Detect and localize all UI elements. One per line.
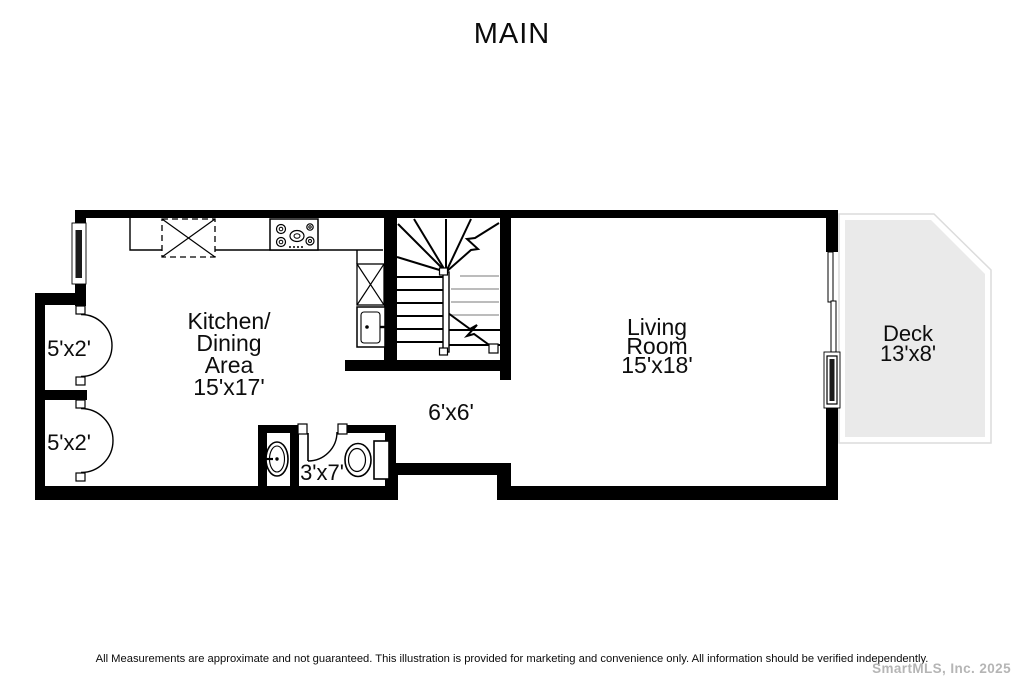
- pantry-x-icon: [357, 264, 384, 305]
- room-labels: Kitchen/ Dining Area 15'x17' Living Room…: [47, 308, 936, 485]
- closet2-hinge-top: [76, 400, 85, 408]
- wall-left-above-window: [75, 210, 86, 223]
- watermark: SmartMLS, Inc. 2025: [872, 661, 1011, 676]
- wall-bath-divider: [290, 433, 299, 490]
- hall-label-dims: 6'x6': [428, 399, 474, 425]
- living-room-label-dims: 15'x18': [621, 352, 692, 378]
- wall-stair-living: [500, 218, 511, 380]
- stairs-winder-fan: [397, 219, 471, 272]
- floorplan-svg: Kitchen/ Dining Area 15'x17' Living Room…: [0, 0, 1024, 683]
- slider-door-icon: [828, 252, 836, 352]
- stairs-up-arrow: [446, 223, 499, 272]
- kitchen-sink-icon: [357, 307, 387, 347]
- wall-living-stub: [497, 463, 511, 488]
- refrigerator-dashed-icon: [162, 219, 215, 257]
- wall-right-top: [826, 210, 838, 252]
- stove-icon: [270, 219, 318, 250]
- disclaimer-text: All Measurements are approximate and not…: [0, 653, 1024, 665]
- bathroom-sink-icon: [265, 442, 288, 476]
- kitchen-label-dims: 15'x17': [193, 374, 264, 400]
- bathroom-label-dims: 3'x7': [300, 460, 344, 485]
- closet-upper-label-dims: 5'x2': [47, 336, 91, 361]
- wall-stair-bottom: [345, 360, 511, 371]
- wall-bottom-living: [497, 486, 838, 500]
- wall-top: [75, 210, 838, 218]
- closet1-hinge-bottom: [76, 377, 85, 385]
- closet1-hinge-top: [76, 306, 85, 314]
- toilet-icon: [345, 441, 389, 479]
- wall-hall-bottom: [386, 463, 511, 475]
- stairs-icon: [397, 219, 500, 355]
- stairs-upper-treads: [451, 276, 499, 315]
- bathroom-door: [298, 424, 347, 461]
- walls: [35, 210, 838, 500]
- floorplan-canvas: MAIN: [0, 0, 1024, 683]
- living-window-icon: [824, 352, 840, 408]
- closet2-hinge-bottom: [76, 473, 85, 481]
- stairs-down-arrow: [448, 313, 498, 353]
- deck-label-dims: 13'x8': [880, 341, 936, 366]
- kitchen-window-icon: [72, 223, 86, 284]
- wall-closet-divider: [35, 390, 87, 400]
- closet-lower-label-dims: 5'x2': [47, 430, 91, 455]
- wall-right-bottom: [826, 408, 838, 500]
- wall-stair-left: [384, 218, 397, 367]
- wall-bottom-left: [35, 486, 398, 500]
